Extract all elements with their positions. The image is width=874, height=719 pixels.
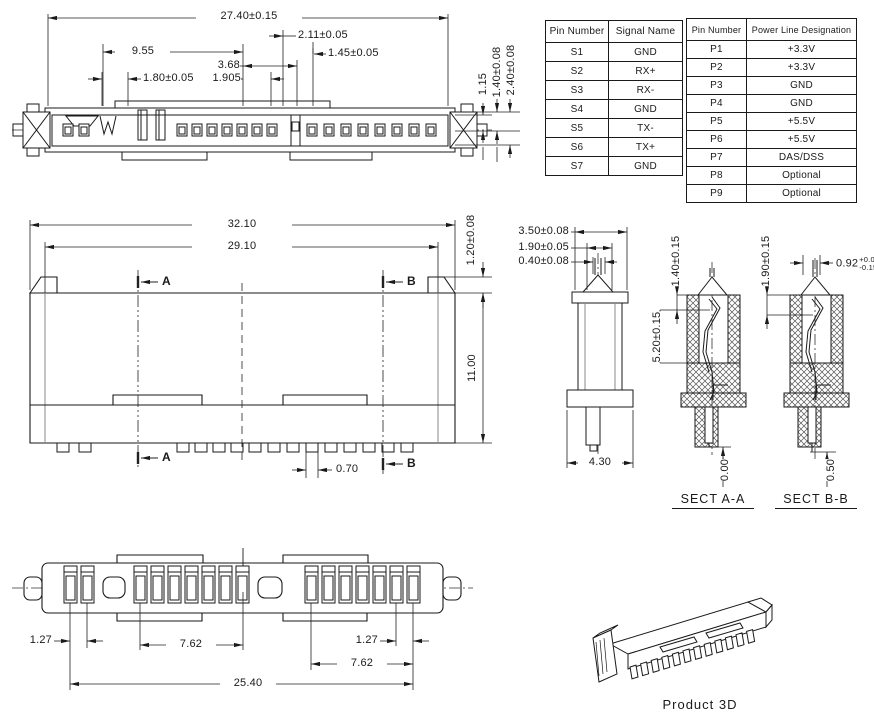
pin-cell: S2 [546,62,609,81]
table-row: S5TX- [546,119,683,138]
power-table-container: Pin Number Power Line Designation P1+3.3… [686,18,857,203]
pin-cell: S1 [546,43,609,62]
value-cell: +5.5V [747,131,857,149]
sect-aa-title: SECT A-A [672,492,754,509]
dim-front-inner: 29.10 [192,240,292,253]
table-row: P1+3.3V [687,41,857,59]
pin-cell: P4 [687,95,747,113]
table-row: S4GND [546,100,683,119]
dim-sectbb-depth-top: 1.90±0.15 [760,236,772,287]
value-cell: GND [609,157,683,176]
signal-table: Pin Number Signal Name S1GND S2RX+ S3RX-… [545,20,683,176]
dim-bottom-span-right: 7.62 [339,657,385,670]
table-row: P6+5.5V [687,131,857,149]
pin-cell: P3 [687,77,747,95]
pin-cell: P8 [687,167,747,185]
value-cell: RX- [609,81,683,100]
value-cell: Optional [747,167,857,185]
value-cell: +3.3V [747,41,857,59]
table-row: P8Optional [687,167,857,185]
dim-top-955: 9.55 [118,45,168,58]
dim-top-115: 1.15 [477,73,489,95]
value-cell: GND [609,43,683,62]
section-marker-a-top: A [162,275,171,288]
pin-cell: S7 [546,157,609,176]
pin-width-tolerance: +0.05-0.15 [859,256,874,271]
power-header-designation: Power Line Designation [747,19,857,41]
tolerance-minus: -0.15 [859,264,874,272]
section-marker-b-bottom: B [407,457,416,470]
table-row: S2RX+ [546,62,683,81]
table-row: P9Optional [687,185,857,203]
dim-bottom-pitch-right: 1.27 [344,634,378,647]
dim-top-1905: 1.905 [198,72,241,85]
product-3d-caption: Product 3D [638,697,762,712]
value-cell: RX+ [609,62,683,81]
value-cell: TX+ [609,138,683,157]
pin-cell: S6 [546,138,609,157]
dim-sectaa-depth-mid: 5.20±0.15 [651,312,663,363]
dim-top-368: 3.68 [192,59,240,72]
dim-top-overall: 27.40±0.15 [199,10,299,23]
pin-cell: P7 [687,149,747,167]
dim-front-overall: 32.10 [192,218,292,231]
dim-sectaa-depth-top: 1.40±0.15 [670,236,682,287]
dim-top-240: 2.40±0.08 [505,45,517,96]
pin-cell: P5 [687,113,747,131]
dim-front-pad-width: 0.70 [336,463,358,476]
sect-bb-outline [784,258,849,460]
dim-top-211: 2.11±0.05 [298,29,348,42]
table-row: P5+5.5V [687,113,857,131]
value-cell: Optional [747,185,857,203]
pin-width-value: 0.92 [836,257,858,269]
dim-front-height: 11.00 [466,354,478,382]
table-row: P3GND [687,77,857,95]
dim-side-mid-width: 1.90±0.05 [505,241,569,254]
section-marker-a-bottom: A [162,451,171,464]
dim-front-ear-height: 1.20±0.08 [465,215,477,266]
value-cell: +5.5V [747,113,857,131]
value-cell: GND [747,95,857,113]
dim-side-top-width: 3.50±0.08 [505,225,569,238]
dim-sectaa-bottom-ref: 0.00 [719,459,731,481]
pin-cell: P9 [687,185,747,203]
sect-bb-title: SECT B-B [775,492,857,509]
value-cell: GND [609,100,683,119]
value-cell: +3.3V [747,59,857,77]
table-header-row: Pin Number Signal Name [546,21,683,43]
pin-cell: P6 [687,131,747,149]
value-cell: DAS/DSS [747,149,857,167]
dim-top-145: 1.45±0.05 [328,47,379,60]
sect-aa-outline [681,262,746,455]
power-header-pin: Pin Number [687,19,747,41]
dim-bottom-span-left: 7.62 [168,638,214,651]
signal-table-container: Pin Number Signal Name S1GND S2RX+ S3RX-… [545,20,683,176]
pin-cell: S3 [546,81,609,100]
table-row: S1GND [546,43,683,62]
table-row: P7DAS/DSS [687,149,857,167]
table-row: P2+3.3V [687,59,857,77]
signal-header-pin: Pin Number [546,21,609,43]
dim-sectbb-bottom-ref: 0.50 [825,459,837,481]
side-view-outline [567,253,633,455]
pin-cell: S5 [546,119,609,138]
value-cell: TX- [609,119,683,138]
dim-side-tip-width: 0.40±0.08 [505,255,569,268]
table-row: S6TX+ [546,138,683,157]
signal-header-name: Signal Name [609,21,683,43]
table-row: P4GND [687,95,857,113]
table-header-row: Pin Number Power Line Designation [687,19,857,41]
front-view-outline [30,277,455,452]
pin-cell: S4 [546,100,609,119]
pin-cell: P1 [687,41,747,59]
section-marker-b-top: B [407,275,416,288]
value-cell: GND [747,77,857,95]
table-row: S7GND [546,157,683,176]
table-row: S3RX- [546,81,683,100]
dim-side-base-width: 4.30 [578,456,622,469]
engineering-drawing-sheet: 27.40±0.15 9.55 3.68 1.80±0.05 1.905 2.1… [0,0,874,719]
dim-bottom-pitch-left: 1.27 [18,634,52,647]
dim-sectbb-pin-width: 0.92+0.05-0.15 [836,256,874,271]
dim-bottom-overall: 25.40 [220,677,276,690]
dim-top-140: 1.40±0.08 [491,47,503,98]
pin-cell: P2 [687,59,747,77]
power-table: Pin Number Power Line Designation P1+3.3… [686,18,857,203]
product-3d-sketch [593,598,772,682]
